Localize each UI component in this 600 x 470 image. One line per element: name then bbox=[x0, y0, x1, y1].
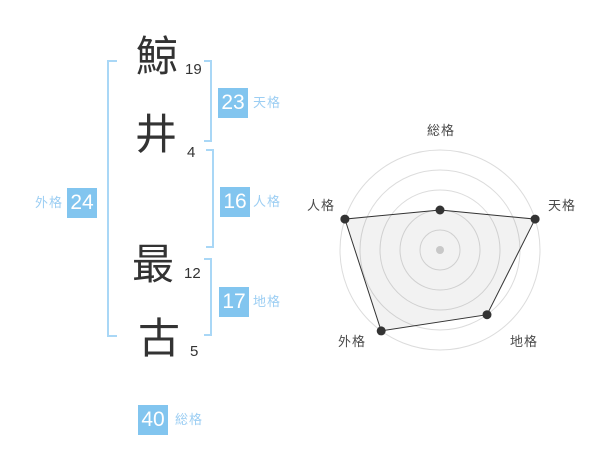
stroke-count-3: 12 bbox=[184, 266, 201, 281]
radar-center-dot bbox=[436, 246, 444, 254]
soukaku-badge: 40 bbox=[138, 405, 168, 435]
jinkaku-label: 人格 bbox=[253, 195, 281, 209]
radar-axis-label-jinkaku: 人格 bbox=[307, 199, 335, 213]
jinkaku-badge: 16 bbox=[220, 187, 250, 217]
name-char-3: 最 bbox=[130, 244, 176, 286]
stroke-count-4: 5 bbox=[190, 344, 198, 359]
name-char-1: 鯨 bbox=[134, 36, 180, 78]
tenkaku-label: 天格 bbox=[253, 96, 281, 110]
radar-chart-svg bbox=[300, 110, 600, 370]
gaikaku-badge: 24 bbox=[67, 188, 97, 218]
chikaku-bracket bbox=[204, 258, 212, 336]
name-char-4: 古 bbox=[136, 318, 182, 360]
radar-polygon bbox=[345, 210, 535, 331]
soukaku-label: 総格 bbox=[175, 413, 203, 427]
radar-point-3 bbox=[377, 326, 386, 335]
gaikaku-bracket bbox=[107, 60, 117, 337]
radar-point-0 bbox=[436, 206, 445, 215]
radar-axis-label-soukaku: 総格 bbox=[427, 124, 455, 138]
name-analysis-panel: 鯨 19 井 4 最 12 古 5 23 天格 16 人格 17 地格 外格 2… bbox=[0, 0, 600, 470]
gaikaku-label: 外格 bbox=[35, 196, 63, 210]
tenkaku-badge: 23 bbox=[218, 88, 248, 118]
stroke-count-1: 19 bbox=[185, 62, 202, 77]
radar-axis-label-chikaku: 地格 bbox=[510, 335, 538, 349]
chikaku-label: 地格 bbox=[253, 295, 281, 309]
stroke-count-2: 4 bbox=[187, 145, 195, 160]
radar-point-1 bbox=[531, 215, 540, 224]
jinkaku-bracket bbox=[206, 149, 214, 248]
radar-point-4 bbox=[340, 215, 349, 224]
name-char-2: 井 bbox=[133, 114, 179, 156]
radar-axis-label-tenkaku: 天格 bbox=[548, 199, 576, 213]
radar-axis-label-gaikaku: 外格 bbox=[338, 335, 366, 349]
chikaku-badge: 17 bbox=[219, 287, 249, 317]
tenkaku-bracket bbox=[204, 60, 212, 142]
radar-point-2 bbox=[483, 310, 492, 319]
